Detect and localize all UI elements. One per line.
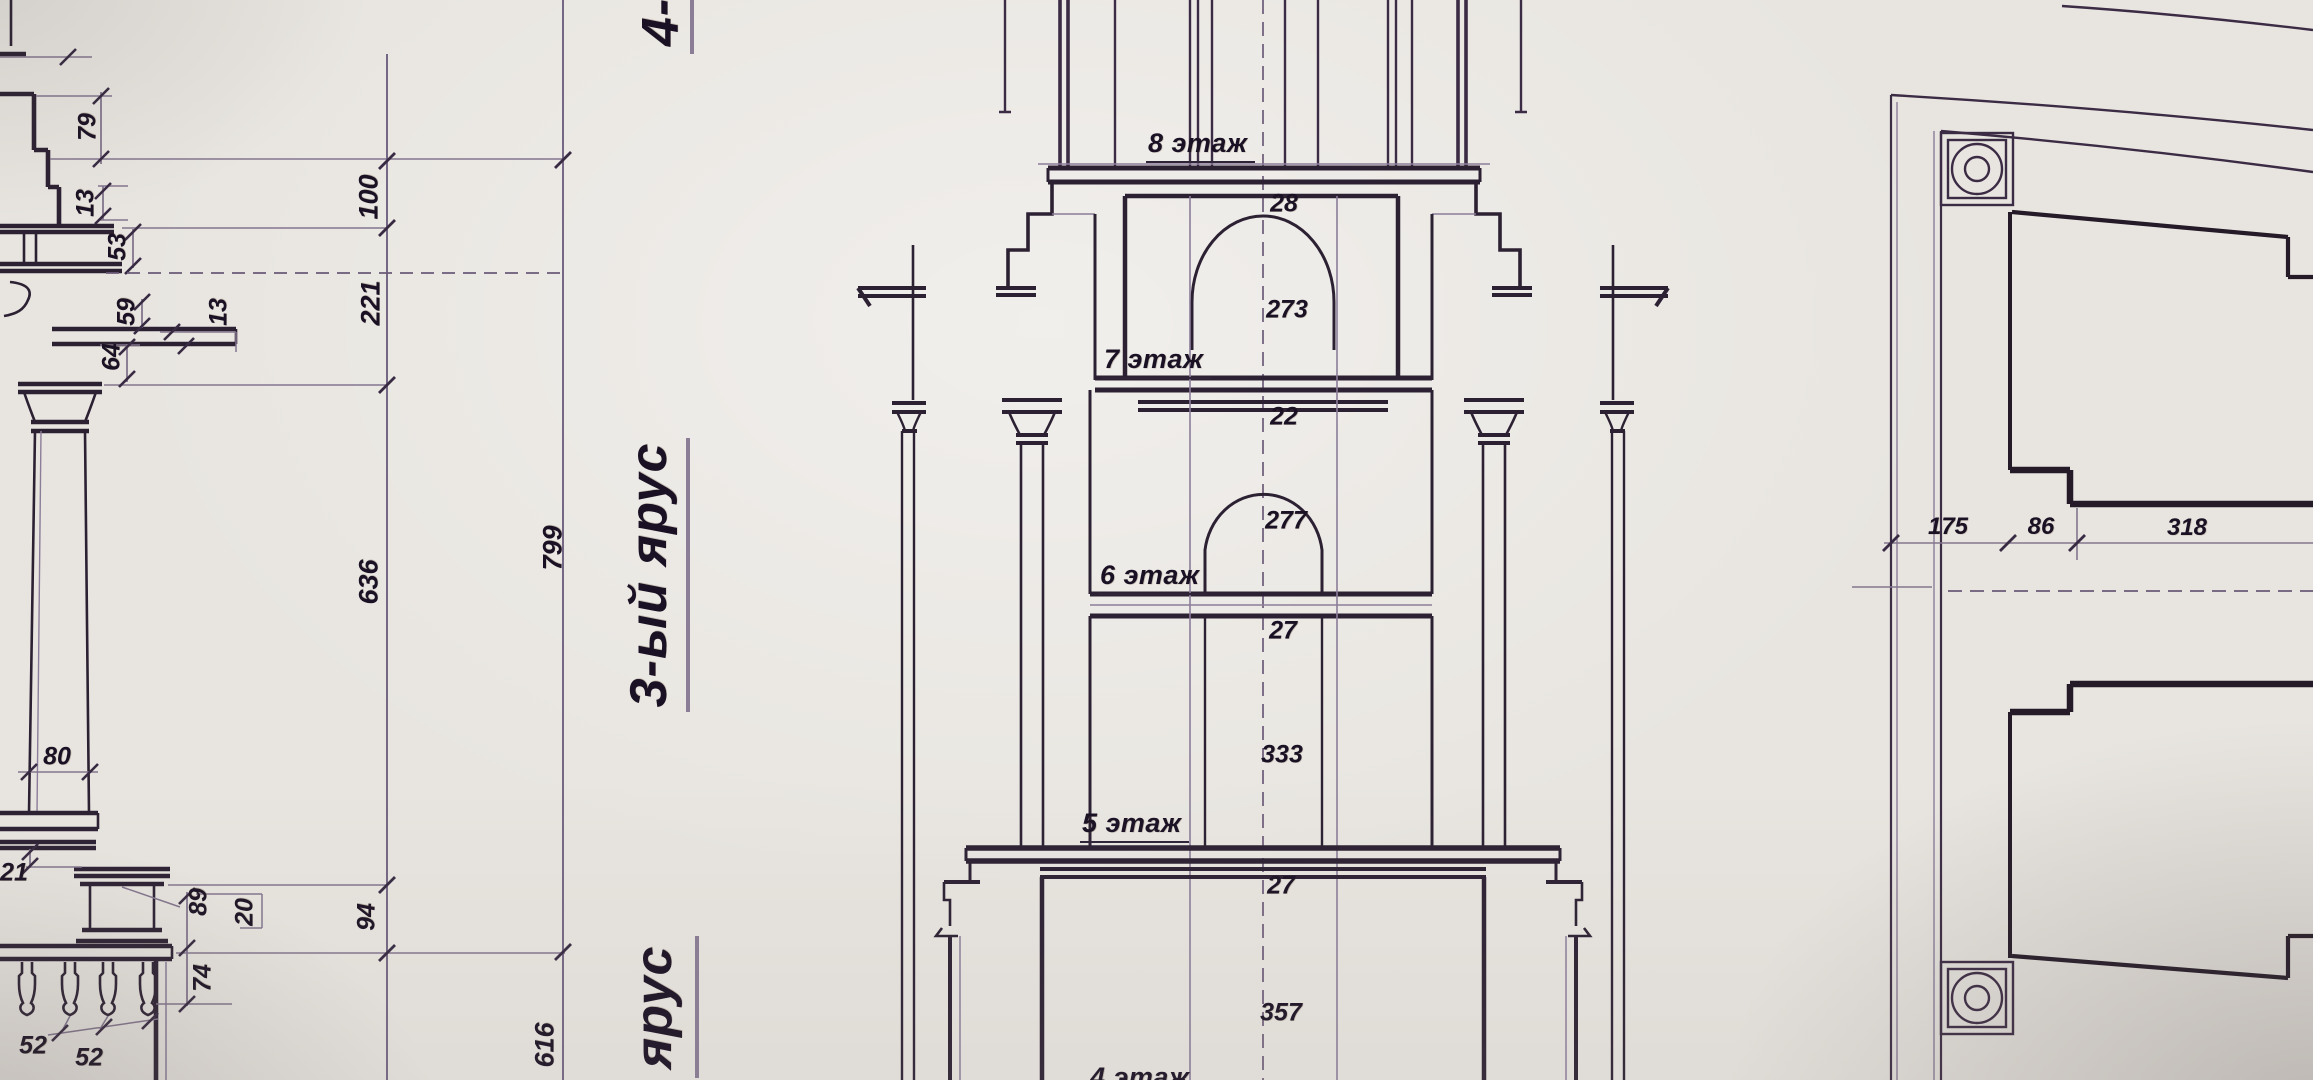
floor-label-5: 5 этаж [1080,808,1189,843]
dim-52b: 52 [75,1044,103,1073]
plan-dimension-line [1852,508,2313,591]
floor-label-8: 8 этаж [1146,128,1255,163]
dim-21: 21 [0,859,28,888]
pendant-drops-row [0,962,156,1015]
dim-28: 28 [1270,190,1298,219]
dim-175: 175 [1928,513,1968,541]
dim-799: 799 [538,525,569,570]
dim-13a: 13 [72,189,101,217]
dim-318: 318 [2167,514,2207,542]
tier-label-4-partial: 4- [631,0,691,46]
dim-636: 636 [354,559,385,604]
dim-616: 616 [530,1022,561,1067]
dim-89: 89 [185,888,214,916]
floor-label-6: 6 этаж [1098,560,1207,595]
left-dimension-ticks [21,49,195,1041]
dim-333: 333 [1261,741,1303,770]
floor-label-4: 4 этаж [1088,1062,1197,1080]
dim-64: 64 [98,343,127,371]
dim-27a: 27 [1269,617,1297,646]
dim-273: 273 [1266,296,1308,325]
dim-20: 20 [231,898,260,926]
dim-53: 53 [104,233,133,261]
tier-title-underlines [688,0,697,1078]
dim-79: 79 [74,113,103,141]
floor-label-7: 7 этаж [1102,344,1211,379]
tower-cornice-steps [996,182,1532,295]
dim-59: 59 [113,298,142,326]
dim-52a: 52 [19,1032,47,1061]
dim-94: 94 [353,903,382,931]
dim-80: 80 [43,743,71,772]
left-cornice-profile [0,0,236,344]
dim-221: 221 [356,280,387,325]
dim-27b: 27 [1267,872,1295,901]
dim-100: 100 [354,174,385,219]
dim-13b: 13 [205,298,234,326]
architectural-drawing-photo: 4- 3-ый ярус ярус 79 13 53 59 13 64 100 … [0,0,2313,1080]
dim-22: 22 [1270,403,1298,432]
tower-top-cornice [1038,164,1490,182]
dim-74: 74 [189,964,218,992]
plan-corner-columns [1941,133,2013,1034]
plan-inner-walls [2010,212,2313,978]
tier-label-2-partial: ярус [624,946,684,1069]
tier-label-3: 3-ый ярус [619,443,679,708]
dim-277: 277 [1265,507,1307,536]
dim-86: 86 [2028,513,2055,541]
dim-357: 357 [1260,999,1302,1028]
central-dimension-lines [106,0,571,1080]
tower-floor5-block [1090,196,1432,1080]
